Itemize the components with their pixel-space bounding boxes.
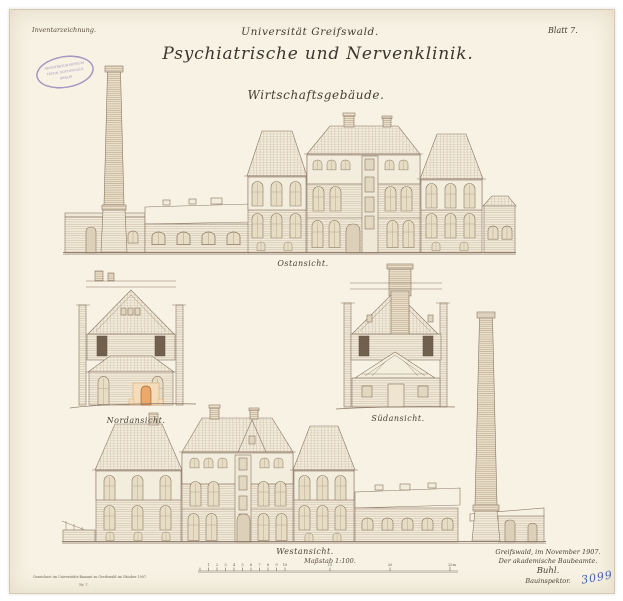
svg-text:2: 2: [216, 563, 218, 567]
svg-text:6: 6: [250, 563, 253, 567]
print-note-line1: Gezeichnet im Universitäts-Bauamt zu Gre…: [33, 575, 105, 579]
sheet-number: Blatt 7.: [548, 26, 578, 35]
scale-label: Maßstab 1:100.: [280, 557, 380, 565]
north-elevation: [70, 271, 196, 408]
svg-text:20: 20: [388, 563, 393, 567]
left-chimney: [101, 66, 127, 252]
title-subtitle: Wirtschaftsgebäude.: [166, 88, 466, 102]
scanned-drawing-page: { "page": { "corner_note": "Inventarzeic…: [0, 0, 623, 601]
caption-west-view: Westansicht.: [255, 547, 355, 556]
print-note-line2: Nr. 7.: [33, 583, 105, 587]
signature-office: Der akademische Baubeamte.: [488, 557, 608, 566]
stamp-line3: BERLIN: [60, 76, 73, 81]
title-institution: Universität Greifswald.: [160, 26, 460, 38]
svg-text:1: 1: [207, 563, 209, 567]
caption-east-view: Ostansicht.: [253, 259, 353, 268]
caption-north-view: Nordansicht.: [86, 416, 186, 425]
right-chimney: [472, 312, 500, 541]
svg-text:7: 7: [258, 563, 261, 567]
caption-south-view: Südansicht.: [348, 414, 448, 423]
print-note: Gezeichnet im Universitäts-Bauamt zu Gre…: [33, 575, 163, 591]
svg-text:5: 5: [241, 563, 244, 567]
signature-place-date: Greifswald, im November 1907.: [488, 548, 608, 557]
svg-text:25m: 25m: [448, 563, 457, 567]
svg-text:4: 4: [233, 563, 236, 567]
svg-text:3: 3: [224, 563, 227, 567]
svg-text:9: 9: [275, 563, 278, 567]
south-elevation: [336, 264, 455, 409]
title-main: Psychiatrische und Nervenklinik.: [118, 44, 518, 64]
corner-note: Inventarzeichnung.: [32, 26, 96, 34]
svg-text:8: 8: [267, 563, 270, 567]
colored-door-annotation: [129, 383, 163, 405]
